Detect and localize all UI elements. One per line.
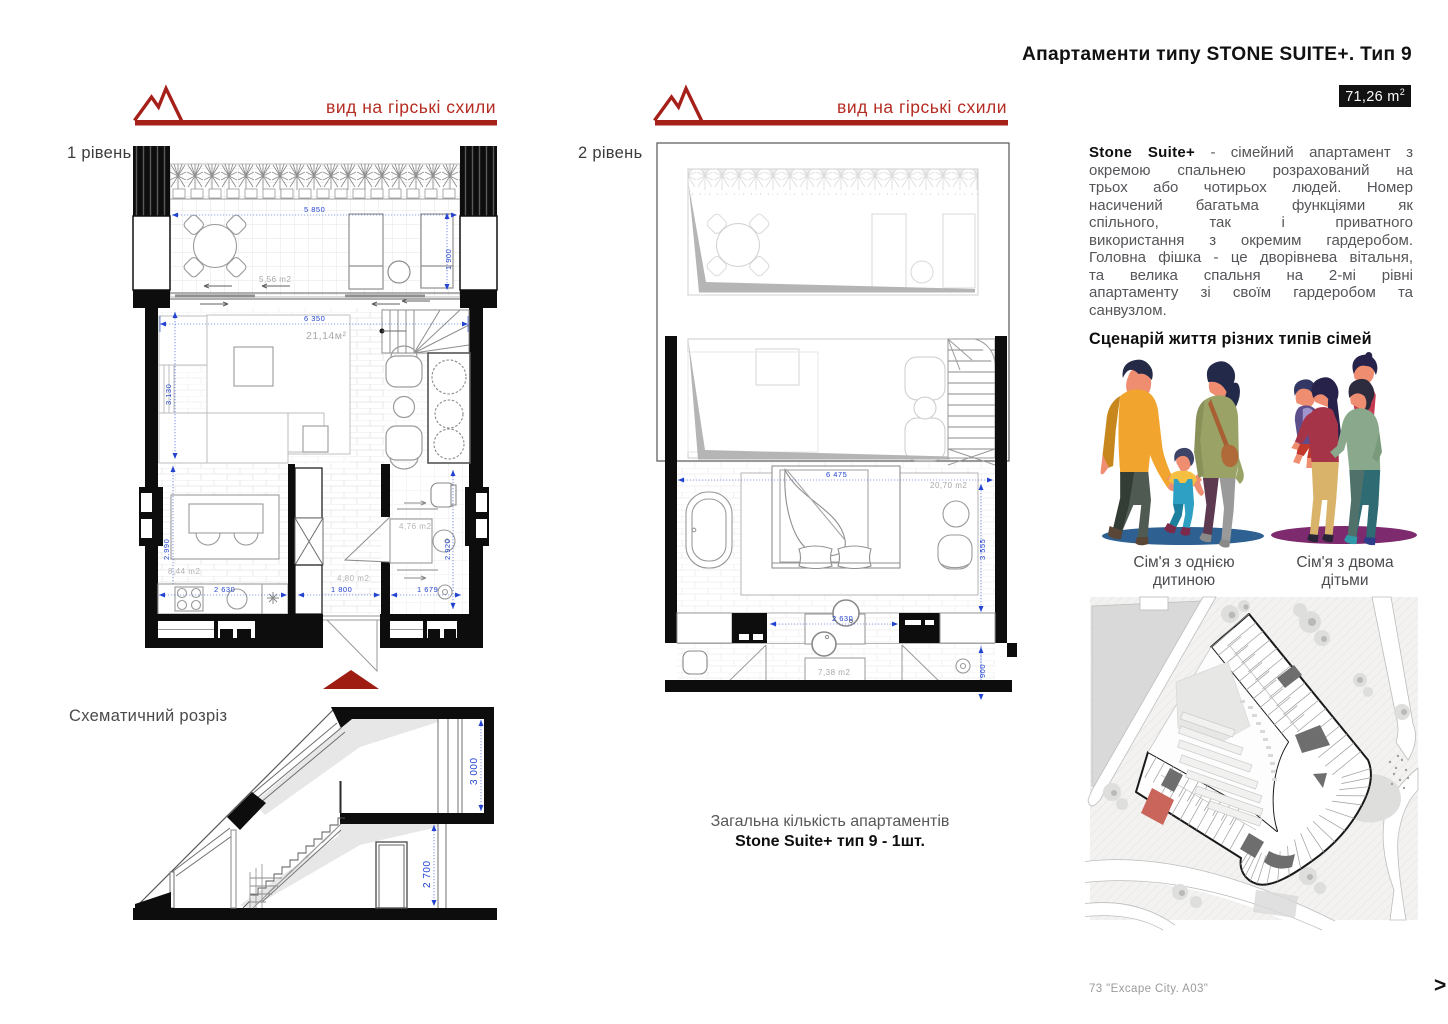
svg-text:7,38 m2: 7,38 m2: [818, 668, 850, 677]
svg-text:вид на гірські схили: вид на гірські схили: [837, 97, 1007, 117]
svg-text:1 900: 1 900: [444, 249, 453, 270]
svg-text:3.130: 3.130: [164, 384, 173, 405]
svg-text:4,80 m2: 4,80 m2: [337, 574, 369, 583]
svg-text:2.990: 2.990: [162, 539, 171, 560]
svg-text:2.920: 2.920: [443, 539, 452, 560]
svg-text:2 630: 2 630: [214, 585, 235, 594]
svg-text:6 475: 6 475: [826, 470, 847, 479]
svg-text:2 700: 2 700: [422, 860, 433, 888]
svg-text:2 630: 2 630: [832, 614, 853, 623]
svg-text:900: 900: [978, 664, 987, 678]
svg-text:вид на гірські схили: вид на гірські схили: [326, 97, 496, 117]
svg-text:3 555: 3 555: [978, 539, 987, 560]
svg-text:4,76 m2: 4,76 m2: [399, 522, 431, 531]
svg-text:3 000: 3 000: [469, 757, 480, 785]
svg-text:1 679: 1 679: [417, 585, 438, 594]
svg-text:5 850: 5 850: [304, 205, 325, 214]
svg-text:5,56 m2: 5,56 m2: [259, 275, 291, 284]
svg-text:20,70 m2: 20,70 m2: [930, 481, 967, 490]
svg-text:1 800: 1 800: [331, 585, 352, 594]
svg-text:6 350: 6 350: [304, 314, 325, 323]
svg-text:21,14м²: 21,14м²: [306, 330, 347, 342]
